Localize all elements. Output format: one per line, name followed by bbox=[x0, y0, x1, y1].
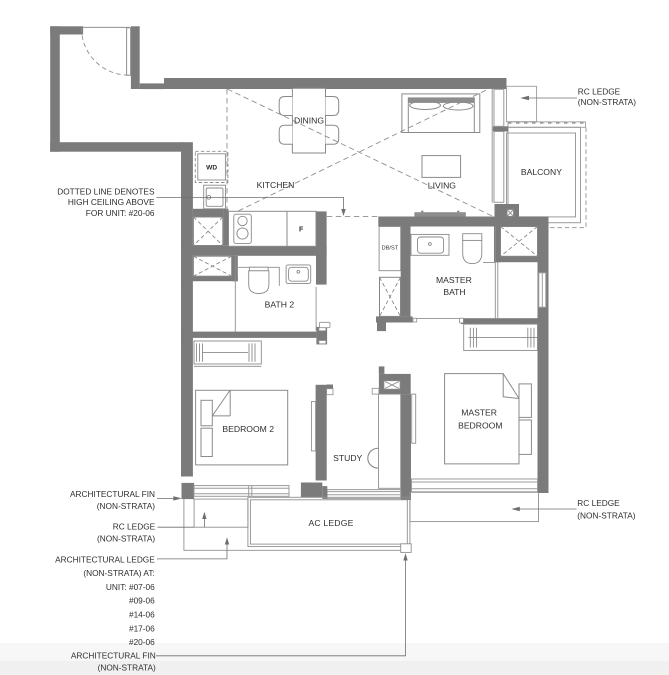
svg-text:ARCHITECTURAL FIN: ARCHITECTURAL FIN bbox=[70, 489, 155, 499]
svg-text:(NON-STRATA) AT:: (NON-STRATA) AT: bbox=[83, 568, 154, 578]
svg-text:AC LEDGE: AC LEDGE bbox=[308, 518, 353, 528]
svg-text:FOR UNIT: #20-06: FOR UNIT: #20-06 bbox=[86, 208, 155, 218]
svg-text:DINING: DINING bbox=[294, 115, 324, 125]
svg-text:(NON-STRATA): (NON-STRATA) bbox=[98, 662, 156, 672]
svg-text:BEDROOM: BEDROOM bbox=[458, 421, 502, 431]
svg-text:#17-06: #17-06 bbox=[129, 623, 155, 633]
svg-text:(NON-STRATA): (NON-STRATA) bbox=[578, 97, 636, 107]
svg-text:#14-06: #14-06 bbox=[129, 610, 155, 620]
svg-text:MASTER: MASTER bbox=[436, 275, 472, 285]
svg-text:BATH: BATH bbox=[443, 287, 465, 297]
svg-text:LIVING: LIVING bbox=[428, 180, 456, 190]
svg-text:KITCHEN: KITCHEN bbox=[257, 180, 295, 190]
svg-text:(NON-STRATA): (NON-STRATA) bbox=[577, 510, 635, 520]
svg-text:DOTTED LINE DENOTES: DOTTED LINE DENOTES bbox=[57, 186, 155, 196]
svg-text:RC LEDGE: RC LEDGE bbox=[113, 521, 156, 531]
svg-text:STUDY: STUDY bbox=[333, 453, 362, 463]
svg-text:#20-06: #20-06 bbox=[129, 637, 155, 647]
svg-text:F: F bbox=[299, 227, 304, 234]
svg-text:DB/ST: DB/ST bbox=[382, 246, 399, 252]
svg-text:UNIT: #07-06: UNIT: #07-06 bbox=[106, 582, 155, 592]
svg-text:ARCHITECTURAL FIN: ARCHITECTURAL FIN bbox=[71, 650, 156, 660]
svg-text:#09-06: #09-06 bbox=[129, 596, 155, 606]
svg-text:BEDROOM 2: BEDROOM 2 bbox=[222, 424, 274, 434]
svg-text:(NON-STRATA): (NON-STRATA) bbox=[97, 533, 155, 543]
svg-text:MASTER: MASTER bbox=[461, 408, 497, 418]
svg-text:HIGH CEILING ABOVE: HIGH CEILING ABOVE bbox=[68, 197, 155, 207]
svg-text:(NON-STRATA): (NON-STRATA) bbox=[97, 501, 155, 511]
svg-text:ARCHITECTURAL LEDGE: ARCHITECTURAL LEDGE bbox=[55, 554, 155, 564]
svg-text:RC LEDGE: RC LEDGE bbox=[577, 498, 620, 508]
svg-text:BALCONY: BALCONY bbox=[521, 167, 562, 177]
svg-text:WD: WD bbox=[206, 164, 217, 171]
svg-text:RC LEDGE: RC LEDGE bbox=[578, 87, 621, 97]
svg-text:BATH 2: BATH 2 bbox=[265, 299, 295, 309]
